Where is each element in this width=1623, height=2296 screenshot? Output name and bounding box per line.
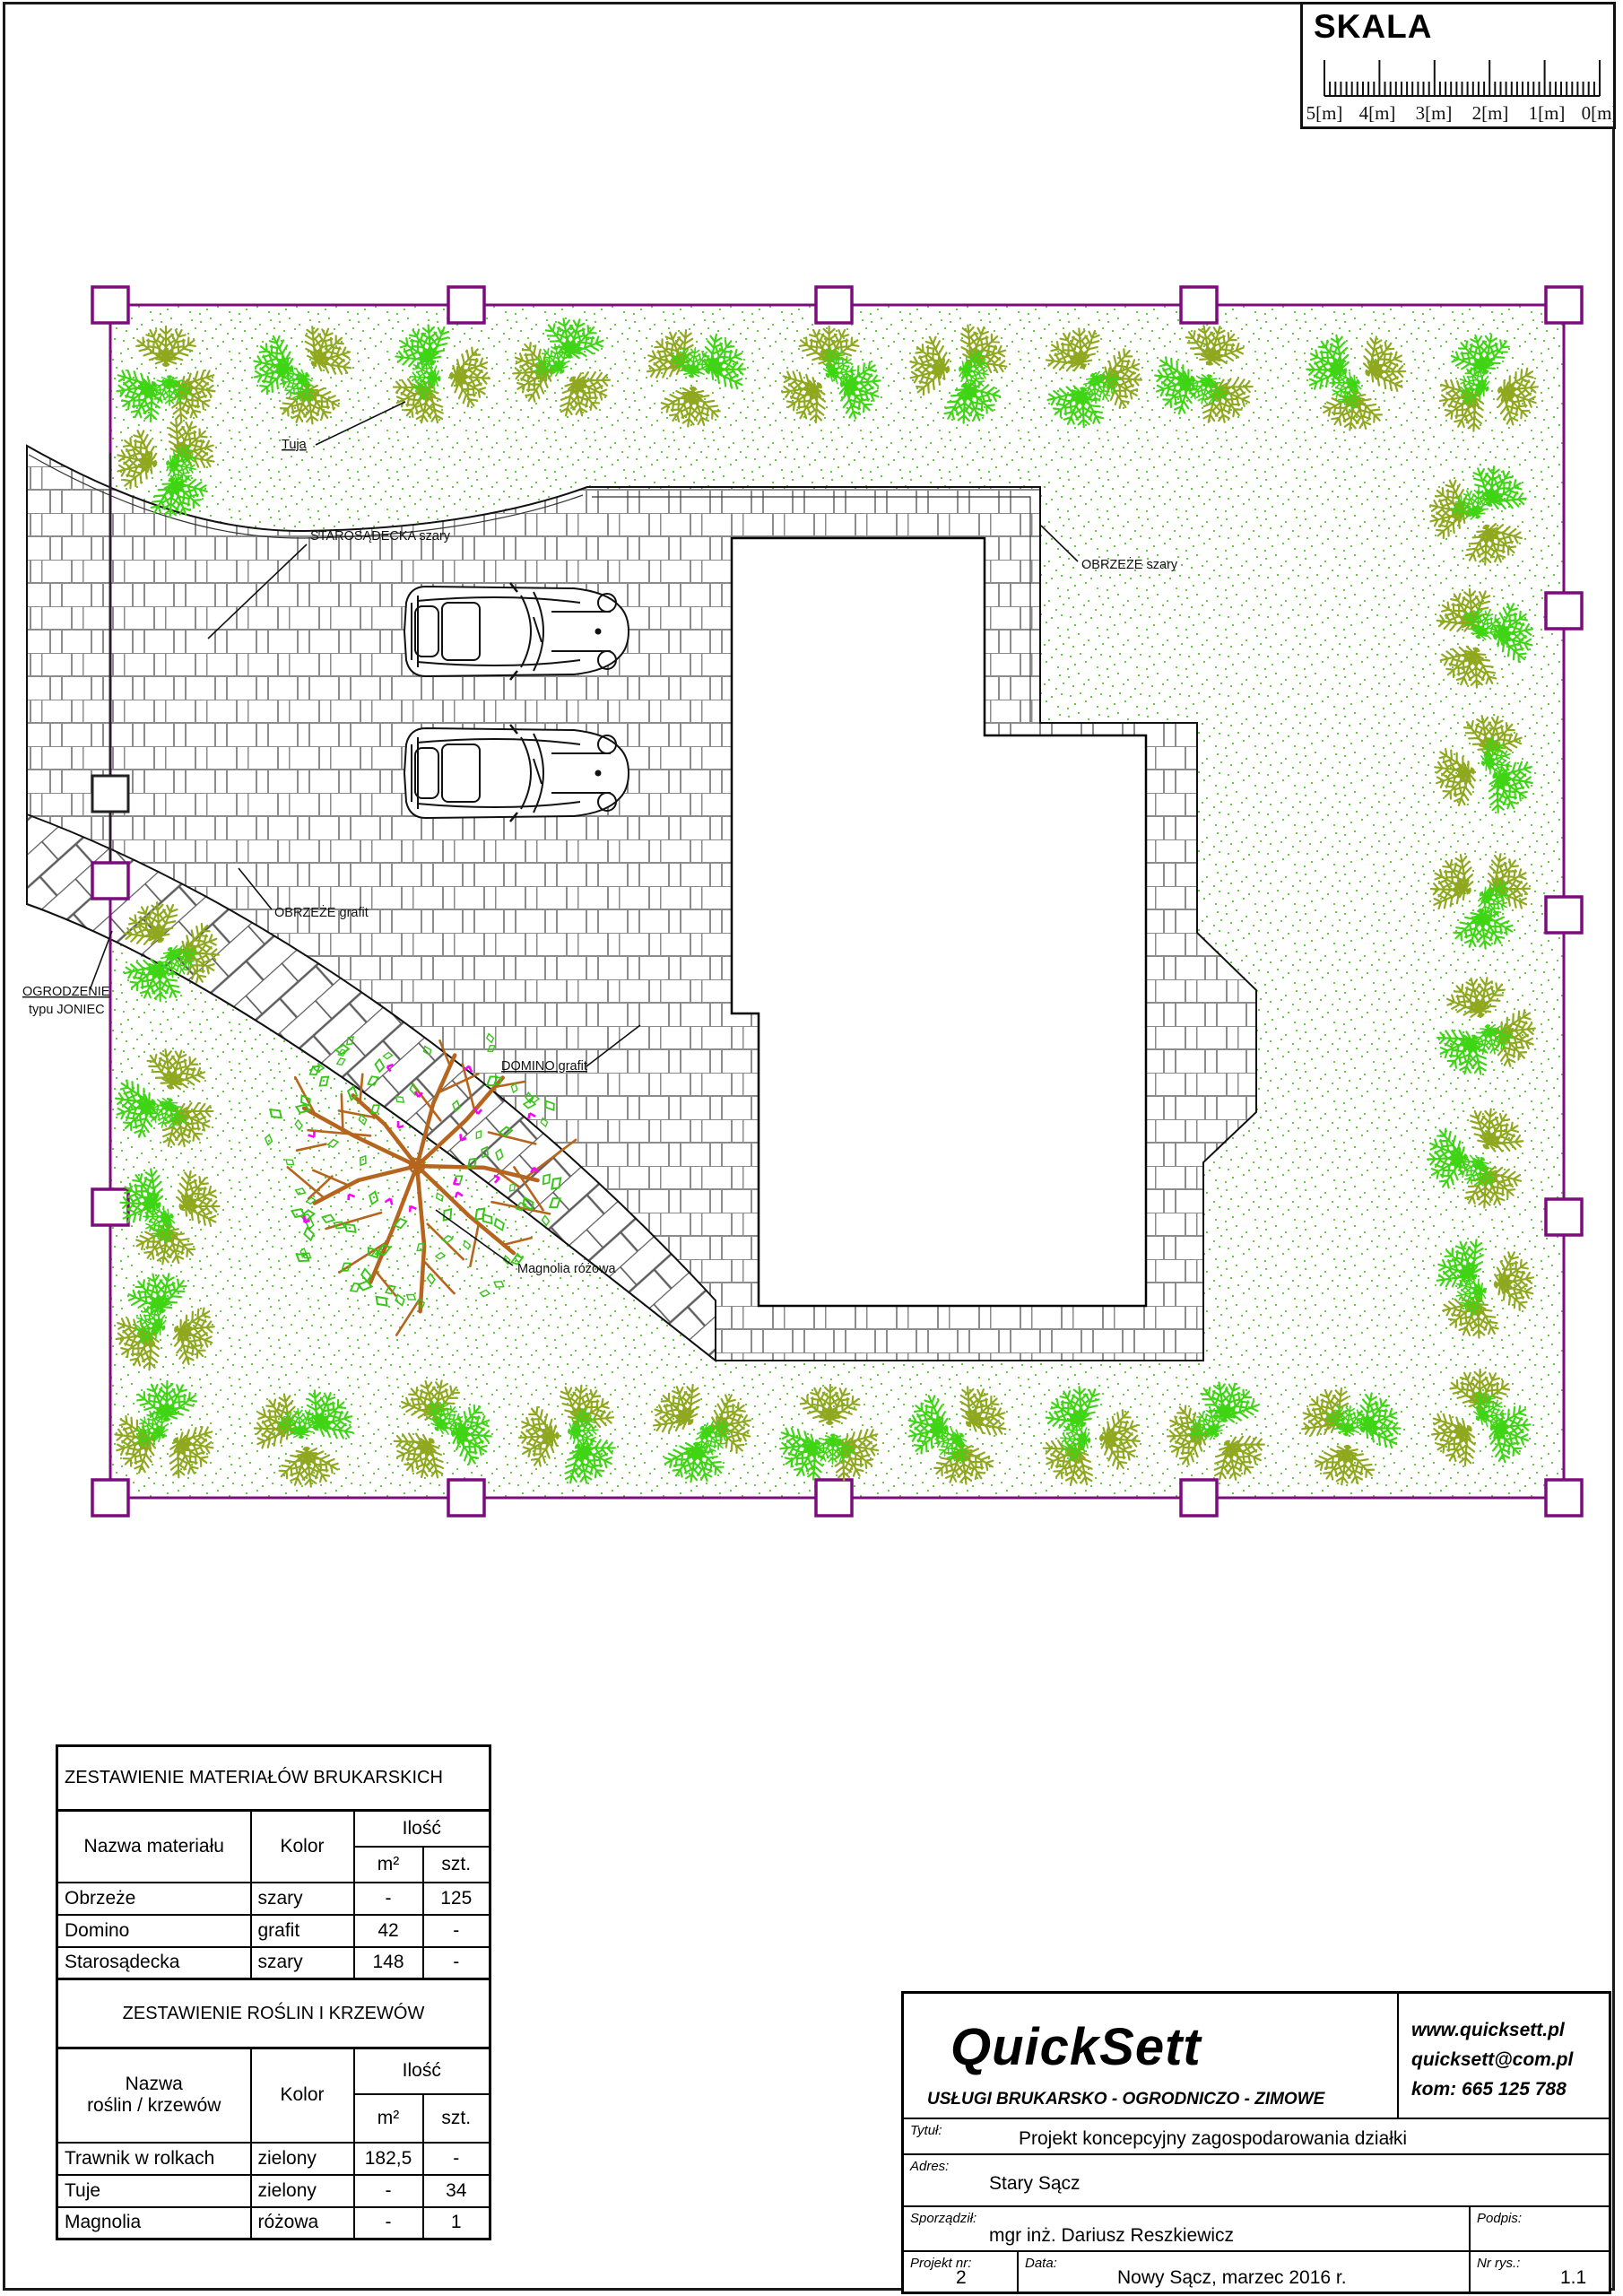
label-ogrodzenie-1: OGRODZENIE (22, 985, 110, 999)
car-top-view (404, 583, 629, 680)
plants-table-title: ZESTAWIENIE ROŚLIN I KRZEWÓW (57, 1979, 490, 2048)
nr-rys-cell: Nr rys.: 1.1 (1471, 2252, 1609, 2292)
scale-tick-label: 0[m] (1582, 102, 1613, 124)
sporzadzil-label: Sporządził: (910, 2211, 976, 2226)
table-row: Tuje zielony - 34 (57, 2175, 490, 2207)
col-header-pcs: szt. (423, 2094, 490, 2143)
plants-table: ZESTAWIENIE ROŚLIN I KRZEWÓW Nazwa rośli… (56, 1978, 491, 2240)
table-row: Magnolia różowa - 1 (57, 2207, 490, 2239)
fence-post (1546, 897, 1582, 933)
table-row: Trawnik w rolkach zielony 182,5 - (57, 2143, 490, 2175)
table-row: Domino grafit 42 - (57, 1915, 490, 1947)
adres-cell: Adres: Stary Sącz (904, 2155, 1609, 2207)
label-tuja: Tuja (282, 438, 308, 452)
col-header-name: Nazwa materiału (57, 1811, 251, 1883)
label-domino: DOMINO grafit (501, 1059, 587, 1074)
data-cell: Data: Nowy Sącz, marzec 2016 r. (1019, 2252, 1471, 2292)
drawing-number: 1.1 (1560, 2267, 1586, 2289)
company-phone: kom: 665 125 788 (1411, 2074, 1609, 2104)
plant-m2: - (354, 2175, 423, 2207)
adres-label: Adres: (910, 2159, 949, 2174)
fence-post (816, 1480, 852, 1516)
fence-post (816, 287, 852, 323)
scale-tick-label: 4[m] (1359, 102, 1396, 124)
scale-tick-label: 1[m] (1529, 102, 1566, 124)
project-title: Projekt koncepcyjny zagospodarowania dzi… (1019, 2128, 1407, 2150)
label-obrzeze-szary: OBRZEŻE szary (1081, 556, 1178, 572)
material-color: grafit (251, 1915, 354, 1947)
plant-name: Magnolia (57, 2207, 251, 2239)
scale-tick-label: 3[m] (1416, 102, 1453, 124)
plant-color: zielony (251, 2175, 354, 2207)
scale-bar: SKALA 5[m] 4[m] 3[m] 2[m] 1[m] 0[m] (1300, 2, 1616, 129)
fence-post (92, 863, 128, 899)
sporzadzil-cell: Sporządził: mgr inż. Dariusz Reszkiewicz (904, 2207, 1471, 2252)
material-name: Starosądecka (57, 1947, 251, 1979)
scale-ruler: 5[m] 4[m] 3[m] 2[m] 1[m] 0[m] (1303, 39, 1613, 126)
tytul-cell: Tytuł: Projekt koncepcyjny zagospodarowa… (904, 2119, 1609, 2155)
material-pcs: - (423, 1947, 490, 1979)
material-color: szary (251, 1883, 354, 1915)
plant-m2: 182,5 (354, 2143, 423, 2175)
plant-color: różowa (251, 2207, 354, 2239)
fence-post (448, 287, 484, 323)
fence-post (448, 1480, 484, 1516)
fence-post (1181, 1480, 1217, 1516)
contact-cell: www.quicksett.pl quicksett@com.pl kom: 6… (1399, 1994, 1609, 2119)
material-pcs: 125 (423, 1883, 490, 1915)
company-tagline: USŁUGI BRUKARSKO - OGRODNICZO - ZIMOWE (927, 2090, 1397, 2109)
plant-pcs: - (423, 2143, 490, 2175)
col-header-pcs: szt. (423, 1847, 490, 1883)
project-number: 2 (956, 2267, 967, 2289)
label-obrzeze-grafit: OBRZEŻE grafit (274, 904, 369, 920)
col-header-qty: Ilość (354, 1811, 490, 1847)
plant-name: Tuje (57, 2175, 251, 2207)
plant-pcs: 34 (423, 2175, 490, 2207)
material-name: Obrzeże (57, 1883, 251, 1915)
material-pcs: - (423, 1915, 490, 1947)
table-row: Obrzeże szary - 125 (57, 1883, 490, 1915)
fence-post (1546, 593, 1582, 629)
plant-pcs: 1 (423, 2207, 490, 2239)
materials-table-title: ZESTAWIENIE MATERIAŁÓW BRUKARSKICH (57, 1746, 490, 1811)
label-magnolia: Magnolia różowa (517, 1262, 617, 1276)
plants-header-line2: roślin / krzewów (58, 2095, 250, 2117)
label-starosadecka: STAROSĄDECKA szary (310, 529, 451, 544)
plant-m2: - (354, 2207, 423, 2239)
projekt-nr-cell: Projekt nr: 2 (904, 2252, 1019, 2292)
col-header-qty: Ilość (354, 2048, 490, 2094)
material-m2: - (354, 1883, 423, 1915)
data-label: Data: (1025, 2256, 1057, 2271)
page: { "scale_bar": { "title": "SKALA", "tick… (0, 0, 1623, 2296)
project-address: Stary Sącz (989, 2173, 1081, 2195)
company-logo: QuickSett (950, 2017, 1397, 2077)
material-m2: 42 (354, 1915, 423, 1947)
project-date: Nowy Sącz, marzec 2016 r. (1117, 2267, 1347, 2289)
col-header-m2: m² (354, 2094, 423, 2143)
company-email: quicksett@com.pl (1411, 2045, 1609, 2074)
car-top-view (404, 725, 629, 822)
label-ogrodzenie-2: typu JONIEC (29, 1003, 105, 1017)
col-header-name: Nazwa roślin / krzewów (57, 2048, 251, 2143)
fence-post (1181, 287, 1217, 323)
material-name: Domino (57, 1915, 251, 1947)
plant-name: Trawnik w rolkach (57, 2143, 251, 2175)
leader-ogrodzenie (90, 931, 112, 990)
title-block: QuickSett USŁUGI BRUKARSKO - OGRODNICZO … (901, 1991, 1611, 2294)
plant-color: zielony (251, 2143, 354, 2175)
table-row: Starosądecka szary 148 - (57, 1947, 490, 1979)
podpis-label: Podpis: (1477, 2211, 1522, 2226)
nr-rys-label: Nr rys.: (1477, 2256, 1520, 2271)
fence-post (92, 1480, 128, 1516)
material-color: szary (251, 1947, 354, 1979)
scale-tick-label: 5[m] (1306, 102, 1343, 124)
fence-post (1546, 1199, 1582, 1235)
tytul-label: Tytuł: (910, 2123, 942, 2138)
col-header-color: Kolor (251, 1811, 354, 1883)
materials-table: ZESTAWIENIE MATERIAŁÓW BRUKARSKICH Nazwa… (56, 1744, 491, 1980)
col-header-color: Kolor (251, 2048, 354, 2143)
scale-tick-label: 2[m] (1472, 102, 1509, 124)
material-m2: 148 (354, 1947, 423, 1979)
gate-post (92, 776, 128, 812)
col-header-m2: m² (354, 1847, 423, 1883)
fence-post (1546, 287, 1582, 323)
fence-post (1546, 1480, 1582, 1516)
fence-post (92, 287, 128, 323)
podpis-cell: Podpis: (1471, 2207, 1609, 2252)
author-name: mgr inż. Dariusz Reszkiewicz (989, 2225, 1234, 2247)
plants-header-line1: Nazwa (58, 2074, 250, 2095)
company-cell: QuickSett USŁUGI BRUKARSKO - OGRODNICZO … (904, 1994, 1399, 2119)
company-website: www.quicksett.pl (1411, 2015, 1609, 2045)
